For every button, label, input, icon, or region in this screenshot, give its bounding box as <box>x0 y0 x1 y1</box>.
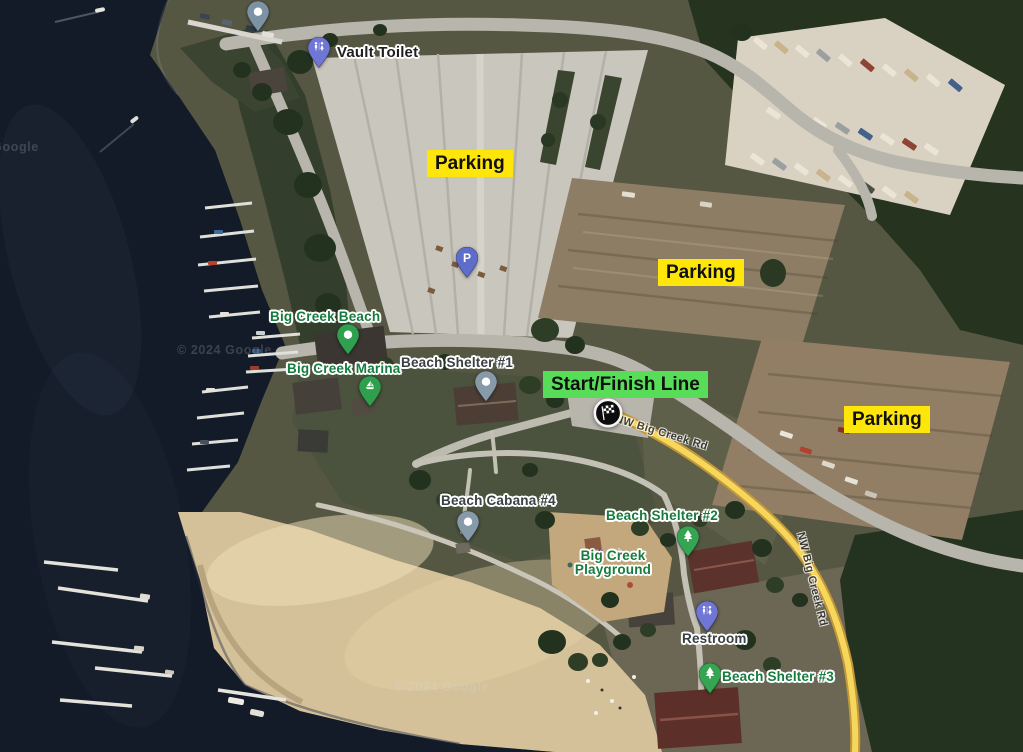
start-finish-checkered-flag-marker <box>592 397 624 429</box>
restroom-pin[interactable] <box>696 601 718 633</box>
dock-pin[interactable] <box>247 1 269 33</box>
vault-toilet-restroom-pin[interactable] <box>308 37 330 69</box>
parking-annotation-1: Parking <box>427 150 513 177</box>
annotated-satellite-map[interactable]: © 2024 Google © 2024 Google © 2024 Googl… <box>0 0 1023 752</box>
parking-p-letter: P <box>463 251 471 265</box>
poi-label-big-creek-beach[interactable]: Big Creek Beach <box>270 309 380 324</box>
parking-annotation-2: Parking <box>658 259 744 286</box>
poi-label-vault-toilet[interactable]: Vault Toilet <box>337 44 418 61</box>
restroom-icon <box>315 42 324 50</box>
poi-label-beach-cabana-4[interactable]: Beach Cabana #4 <box>441 493 556 508</box>
satellite-imagery[interactable] <box>0 0 1023 752</box>
beach-shelter-2-pin[interactable] <box>677 526 699 558</box>
map-attribution: © 2024 Google <box>177 343 272 357</box>
parking-p-pin[interactable]: P <box>456 247 478 279</box>
poi-label-beach-shelter-2[interactable]: Beach Shelter #2 <box>606 508 718 523</box>
beach-shelter-3-building <box>654 687 742 749</box>
poi-label-beach-shelter-1[interactable]: Beach Shelter #1 <box>401 355 513 370</box>
big-creek-marina-pin[interactable] <box>359 376 381 408</box>
poi-label-big-creek-playground[interactable]: Big Creek Playground <box>568 549 658 577</box>
big-creek-beach-pin[interactable] <box>337 324 359 356</box>
parking-annotation-3: Parking <box>844 406 930 433</box>
start-finish-annotation: Start/Finish Line <box>543 371 708 398</box>
beach-cabana-4-pin[interactable] <box>457 511 479 543</box>
beach-shelter-3-pin[interactable] <box>699 663 721 695</box>
map-attribution: © 2024 Google <box>394 680 489 694</box>
poi-label-restroom[interactable]: Restroom <box>682 631 747 646</box>
map-attribution: © 2024 Google <box>0 140 39 154</box>
beach-shelter-1-pin[interactable] <box>475 371 497 403</box>
restroom-icon <box>703 606 712 614</box>
poi-label-beach-shelter-3[interactable]: Beach Shelter #3 <box>722 669 834 684</box>
poi-label-big-creek-marina[interactable]: Big Creek Marina <box>287 361 401 376</box>
